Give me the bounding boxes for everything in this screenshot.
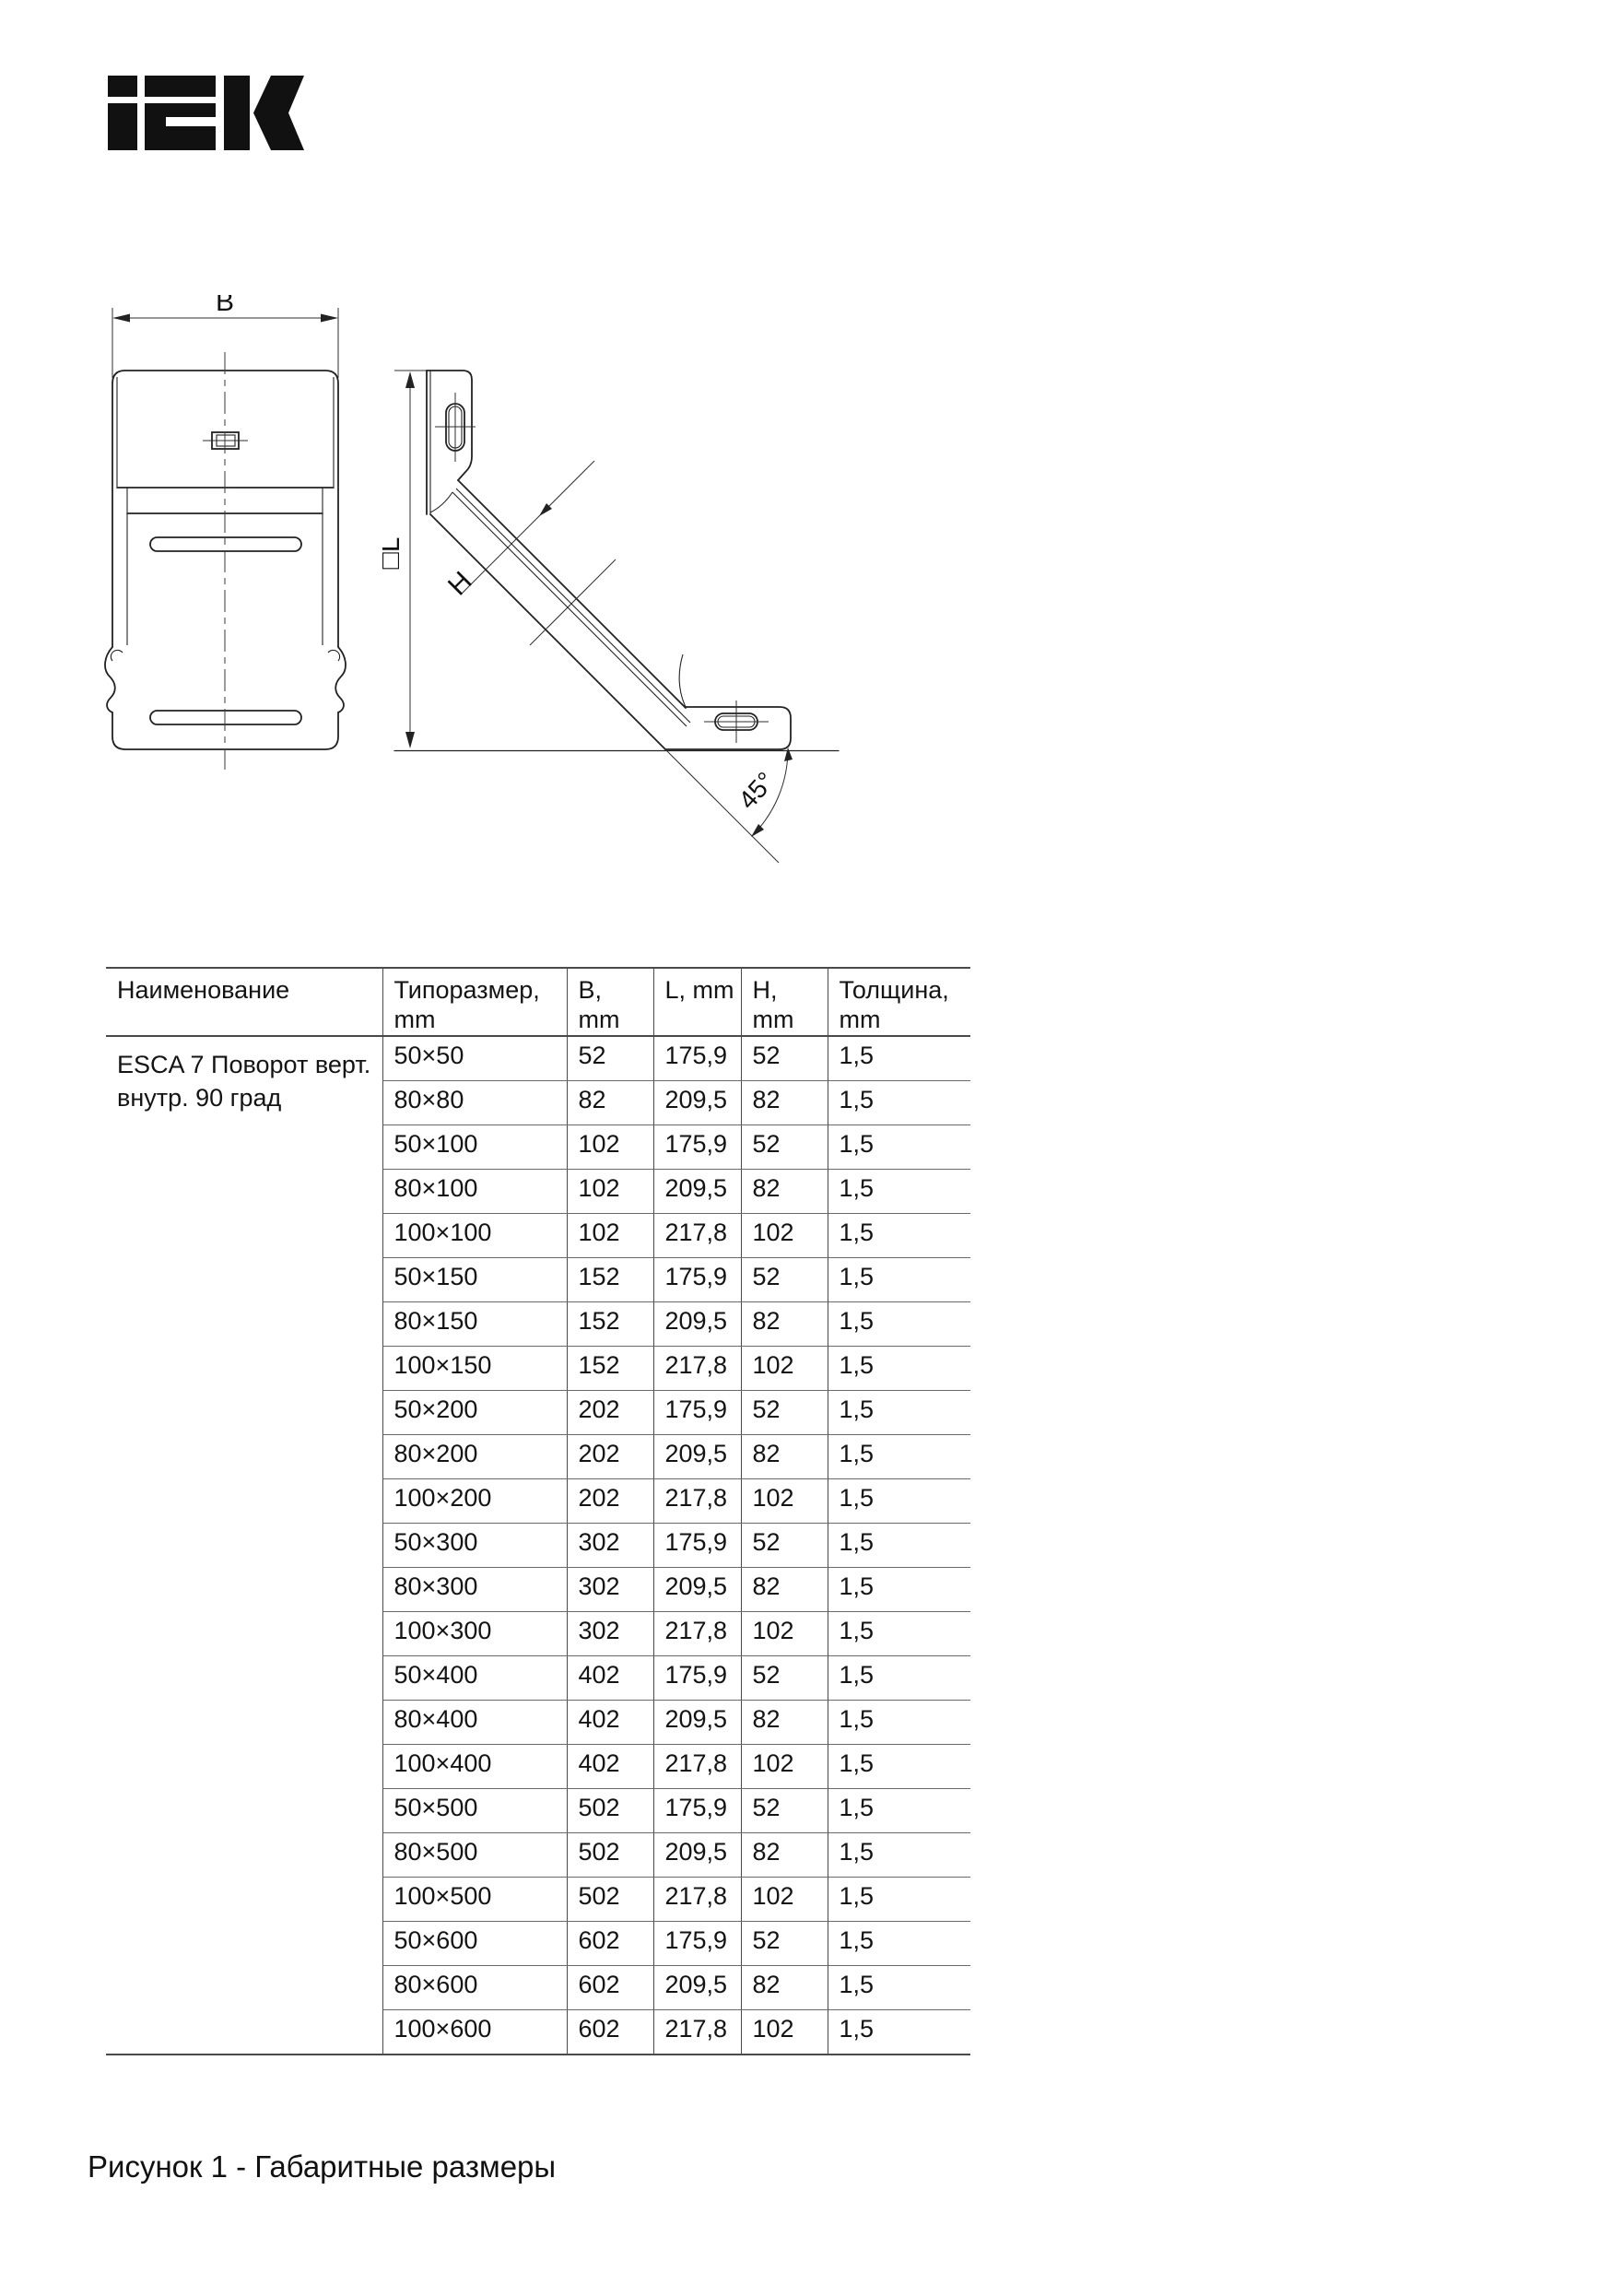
table-cell: 175,9 bbox=[653, 1036, 741, 1081]
table-cell: 1,5 bbox=[828, 1213, 970, 1257]
table-cell: 1,5 bbox=[828, 1257, 970, 1301]
dim-l-label: □L bbox=[382, 537, 405, 570]
table-cell: 1,5 bbox=[828, 1390, 970, 1434]
table-cell: 502 bbox=[567, 1877, 653, 1921]
table-header-row: Наименование Типоразмер, mm B, mm L, mm … bbox=[106, 968, 970, 1036]
table-cell: 209,5 bbox=[653, 1700, 741, 1744]
dim-angle: 45° bbox=[665, 748, 793, 863]
table-cell: 302 bbox=[567, 1611, 653, 1655]
table-cell: 402 bbox=[567, 1655, 653, 1700]
table-cell: 102 bbox=[741, 1478, 828, 1523]
dim-h-label: H bbox=[442, 566, 478, 602]
table-cell: 80×600 bbox=[382, 1965, 567, 2009]
front-view-drawing: B bbox=[97, 295, 355, 770]
dim-b-label: B bbox=[216, 295, 234, 317]
table-cell: 602 bbox=[567, 1965, 653, 2009]
table-cell: 102 bbox=[741, 1877, 828, 1921]
table-cell: 100×500 bbox=[382, 1877, 567, 1921]
iek-logo bbox=[108, 76, 304, 150]
table-cell: 82 bbox=[741, 1965, 828, 2009]
table-cell: 100×100 bbox=[382, 1213, 567, 1257]
table-cell: 50×500 bbox=[382, 1788, 567, 1832]
table-cell: 1,5 bbox=[828, 1169, 970, 1213]
table-cell: 52 bbox=[741, 1257, 828, 1301]
header-b: B, mm bbox=[567, 968, 653, 1036]
table-cell: 302 bbox=[567, 1523, 653, 1567]
table-cell: 82 bbox=[741, 1832, 828, 1877]
table-cell: 82 bbox=[741, 1169, 828, 1213]
table-cell: 217,8 bbox=[653, 2009, 741, 2055]
table-cell: 80×150 bbox=[382, 1301, 567, 1346]
header-thickness: Толщина, mm bbox=[828, 968, 970, 1036]
table-cell: 175,9 bbox=[653, 1257, 741, 1301]
table-body: ESCA 7 Поворот верт. внутр. 90 град50×50… bbox=[106, 1036, 970, 2055]
table-cell: 1,5 bbox=[828, 1346, 970, 1390]
table-cell: 52 bbox=[741, 1921, 828, 1965]
table-cell: 1,5 bbox=[828, 2009, 970, 2055]
table-cell: 175,9 bbox=[653, 1124, 741, 1169]
table-cell: 80×400 bbox=[382, 1700, 567, 1744]
table-cell: 100×600 bbox=[382, 2009, 567, 2055]
table-cell: 80×300 bbox=[382, 1567, 567, 1611]
table-cell: 80×80 bbox=[382, 1080, 567, 1124]
table-cell: 52 bbox=[741, 1655, 828, 1700]
table-cell: 102 bbox=[567, 1169, 653, 1213]
table-cell: 209,5 bbox=[653, 1434, 741, 1478]
table-cell: 209,5 bbox=[653, 1965, 741, 2009]
table-cell: 82 bbox=[741, 1301, 828, 1346]
table-cell: 175,9 bbox=[653, 1788, 741, 1832]
table-cell: 102 bbox=[567, 1124, 653, 1169]
table-cell: 52 bbox=[741, 1124, 828, 1169]
document-page: { "page": { "brand": "IEK", "figure_capt… bbox=[0, 0, 1609, 2296]
table-cell: 402 bbox=[567, 1744, 653, 1788]
table-cell: 100×200 bbox=[382, 1478, 567, 1523]
product-name-cell: ESCA 7 Поворот верт. внутр. 90 град bbox=[106, 1036, 382, 2055]
table-cell: 102 bbox=[567, 1213, 653, 1257]
table-cell: 82 bbox=[741, 1567, 828, 1611]
table-cell: 217,8 bbox=[653, 1478, 741, 1523]
table-cell: 80×200 bbox=[382, 1434, 567, 1478]
table-cell: 152 bbox=[567, 1346, 653, 1390]
table-cell: 50×300 bbox=[382, 1523, 567, 1567]
table-cell: 102 bbox=[741, 1744, 828, 1788]
table-cell: 175,9 bbox=[653, 1921, 741, 1965]
table-cell: 52 bbox=[741, 1036, 828, 1081]
table-cell: 52 bbox=[741, 1523, 828, 1567]
table-cell: 602 bbox=[567, 1921, 653, 1965]
header-name: Наименование bbox=[106, 968, 382, 1036]
table-cell: 82 bbox=[741, 1080, 828, 1124]
table-cell: 1,5 bbox=[828, 1036, 970, 1081]
table-cell: 502 bbox=[567, 1788, 653, 1832]
table-cell: 217,8 bbox=[653, 1346, 741, 1390]
table-cell: 1,5 bbox=[828, 1434, 970, 1478]
table-cell: 152 bbox=[567, 1257, 653, 1301]
table-cell: 217,8 bbox=[653, 1877, 741, 1921]
table-cell: 1,5 bbox=[828, 1921, 970, 1965]
table-cell: 50×600 bbox=[382, 1921, 567, 1965]
table-cell: 202 bbox=[567, 1478, 653, 1523]
table-cell: 502 bbox=[567, 1832, 653, 1877]
table-cell: 52 bbox=[567, 1036, 653, 1081]
table-cell: 100×300 bbox=[382, 1611, 567, 1655]
table-cell: 50×100 bbox=[382, 1124, 567, 1169]
table-cell: 175,9 bbox=[653, 1523, 741, 1567]
table-cell: 52 bbox=[741, 1390, 828, 1434]
side-view-drawing: □L H 45° bbox=[382, 359, 862, 871]
table-cell: 50×400 bbox=[382, 1655, 567, 1700]
table-cell: 202 bbox=[567, 1434, 653, 1478]
dim-l: □L bbox=[382, 371, 437, 748]
table-cell: 1,5 bbox=[828, 1124, 970, 1169]
figure-caption: Рисунок 1 - Габаритные размеры bbox=[88, 2149, 556, 2184]
table-cell: 102 bbox=[741, 1611, 828, 1655]
table-cell: 209,5 bbox=[653, 1567, 741, 1611]
table-cell: 102 bbox=[741, 1213, 828, 1257]
table-cell: 1,5 bbox=[828, 1788, 970, 1832]
table-cell: 175,9 bbox=[653, 1655, 741, 1700]
table-cell: 1,5 bbox=[828, 1877, 970, 1921]
table-cell: 100×400 bbox=[382, 1744, 567, 1788]
table-cell: 52 bbox=[741, 1788, 828, 1832]
table-cell: 1,5 bbox=[828, 1965, 970, 2009]
table-cell: 1,5 bbox=[828, 1700, 970, 1744]
table-cell: 50×200 bbox=[382, 1390, 567, 1434]
header-l: L, mm bbox=[653, 968, 741, 1036]
table-cell: 302 bbox=[567, 1567, 653, 1611]
header-h: H, mm bbox=[741, 968, 828, 1036]
table-cell: 1,5 bbox=[828, 1611, 970, 1655]
side-view-part bbox=[394, 371, 839, 751]
header-typesize: Типоразмер, mm bbox=[382, 968, 567, 1036]
table-cell: 1,5 bbox=[828, 1744, 970, 1788]
table-cell: 202 bbox=[567, 1390, 653, 1434]
table-cell: 1,5 bbox=[828, 1301, 970, 1346]
iek-logo-glyphs bbox=[108, 76, 304, 150]
dimensions-table: Наименование Типоразмер, mm B, mm L, mm … bbox=[106, 967, 970, 2055]
table-cell: 602 bbox=[567, 2009, 653, 2055]
table-cell: 209,5 bbox=[653, 1301, 741, 1346]
table-cell: 1,5 bbox=[828, 1478, 970, 1523]
table-cell: 1,5 bbox=[828, 1567, 970, 1611]
table-cell: 102 bbox=[741, 2009, 828, 2055]
table-cell: 217,8 bbox=[653, 1611, 741, 1655]
table-cell: 82 bbox=[741, 1700, 828, 1744]
table-cell: 82 bbox=[741, 1434, 828, 1478]
table-cell: 209,5 bbox=[653, 1080, 741, 1124]
table-cell: 209,5 bbox=[653, 1169, 741, 1213]
table-cell: 1,5 bbox=[828, 1080, 970, 1124]
table-cell: 175,9 bbox=[653, 1390, 741, 1434]
table-cell: 100×150 bbox=[382, 1346, 567, 1390]
table-header: Наименование Типоразмер, mm B, mm L, mm … bbox=[106, 968, 970, 1036]
front-view-part bbox=[105, 352, 346, 770]
table-cell: 50×150 bbox=[382, 1257, 567, 1301]
table-cell: 1,5 bbox=[828, 1832, 970, 1877]
table-cell: 1,5 bbox=[828, 1523, 970, 1567]
table-cell: 82 bbox=[567, 1080, 653, 1124]
table-cell: 80×100 bbox=[382, 1169, 567, 1213]
table-cell: 217,8 bbox=[653, 1213, 741, 1257]
table-row: ESCA 7 Поворот верт. внутр. 90 град50×50… bbox=[106, 1036, 970, 1081]
table-cell: 402 bbox=[567, 1700, 653, 1744]
table-cell: 1,5 bbox=[828, 1655, 970, 1700]
table-cell: 217,8 bbox=[653, 1744, 741, 1788]
table-cell: 80×500 bbox=[382, 1832, 567, 1877]
table-cell: 50×50 bbox=[382, 1036, 567, 1081]
table-cell: 209,5 bbox=[653, 1832, 741, 1877]
table-cell: 102 bbox=[741, 1346, 828, 1390]
table-cell: 152 bbox=[567, 1301, 653, 1346]
